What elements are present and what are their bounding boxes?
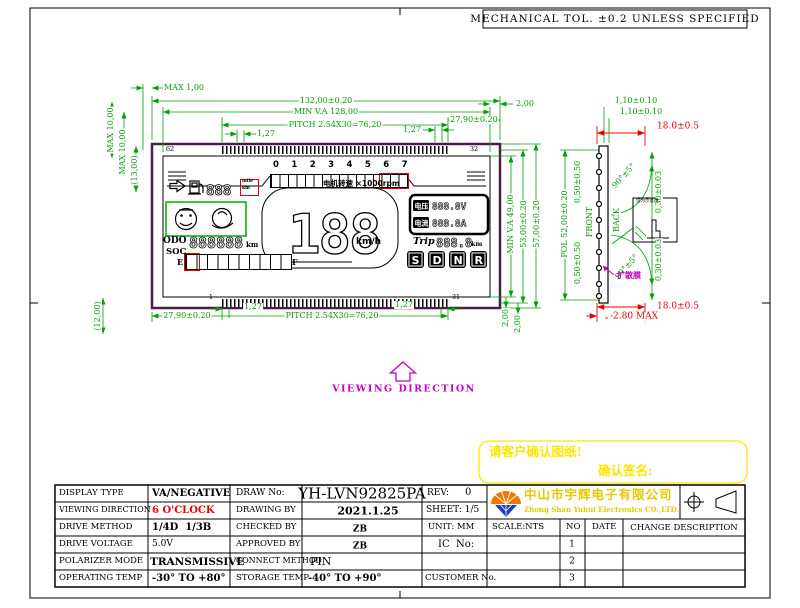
fuel-unit-b: km (242, 187, 250, 192)
dim-pol-width: POL 52,00±0.20 (561, 189, 569, 258)
connect-method-value: PIN (310, 556, 331, 567)
pin-number-62: 62 (166, 146, 174, 153)
soc-label: SOC (166, 248, 186, 257)
checked-by-value: ZB (353, 526, 367, 535)
dim-gap-top-right: 2,00 (515, 100, 535, 108)
fuel-value: 888 (206, 183, 231, 199)
customer-no-label: CUSTOMER No. (425, 574, 496, 583)
rev-label: REV: (427, 489, 449, 498)
trip-unit: km (471, 241, 482, 248)
change-row-1: 1 (569, 541, 575, 550)
gear-r: R (475, 254, 484, 267)
sheet-value: SHEET: 1/5 (426, 506, 479, 515)
fuel-unit-a: mile (242, 180, 253, 185)
dim-overall-height: 57,00±0.20 (533, 199, 541, 248)
drawing-sheet: 188 888 888888 888.8V 888.8A 888.8 电压 电流… (0, 0, 800, 608)
dim-overall-width: 132,00±0.20 (299, 97, 354, 105)
tolerance-note: MECHANICAL TOL. ±0.2 UNLESS SPECIFIED (470, 14, 759, 25)
scale-cell: SCALE:NTS (492, 523, 544, 532)
gear-n: N (454, 254, 463, 267)
rev-value: 0 (465, 488, 471, 498)
label-back: BACK (613, 207, 621, 233)
odo-unit: km (246, 241, 258, 248)
soc-empty-label: E (177, 258, 183, 266)
speed-unit: km/h (356, 238, 381, 247)
custom-segment-highlight-soc (184, 253, 200, 271)
viewing-direction-row-label: VIEWING DIRECTION (59, 506, 151, 514)
dim-127-top-left: 1,27 (256, 130, 276, 138)
dim-pin-length-top: 18.0±0.5 (657, 123, 699, 132)
company-logo (491, 490, 521, 517)
dim-offset-bottom: 0,50±0.50 (574, 241, 582, 285)
tach-digit-row: 0 1 2 3 4 5 6 7 (273, 161, 408, 170)
voltage-label: 电压 (415, 202, 429, 211)
label-front: FRONT (586, 206, 594, 238)
storage-temp-label: STORAGE TEMP (236, 574, 309, 583)
polarizer-mode-value: TRANSMISSIVE (150, 557, 244, 568)
viewing-direction-value: 6 O'CLOCK (152, 506, 215, 516)
dim-127-top-right: 1,27 (402, 126, 422, 134)
dim-bend-top: 0,30±0.03 (655, 170, 663, 214)
customer-note-line2: 确认签名: (598, 465, 653, 478)
trip-label: Trip (413, 237, 435, 247)
operating-temp-label: OPERATING TEMP (59, 574, 142, 583)
dim-thickness: -2.80 MAX (610, 313, 658, 322)
pin-number-31: 31 (452, 294, 460, 301)
dim-max-lip: MAX 1,00 (163, 84, 205, 92)
dim-gap-bottom-right-2: 2,00 (514, 314, 522, 334)
drive-method-value: 1/4D 1/3B (152, 523, 211, 533)
drawing-by-label: DRAWING BY (236, 506, 296, 515)
change-column-header: CHANGE DESCRIPTION (630, 524, 737, 533)
viewing-direction-label: VIEWING DIRECTION (332, 384, 476, 394)
no-column-header: NO (566, 523, 580, 532)
soc-gauge (185, 254, 292, 270)
dim-pin-length-bottom: 18.0±0.5 (657, 303, 699, 312)
date-column-header: DATE (592, 523, 616, 532)
company-name-en: Zhong Shan Yuhui Electronics CO.,LTD. (524, 506, 679, 513)
dim-pol-height: 53,00±0.20 (520, 199, 528, 248)
dim-layer-b: 1,10±0.10 (619, 108, 663, 116)
approved-by-label: APPROVED BY (236, 540, 300, 549)
dim-min-va-height: MIN V.A 49,00 (507, 193, 515, 254)
storage-temp-value: -40° TO +90° (308, 574, 381, 584)
voltage-value: 888.8V (432, 202, 467, 213)
odo-value: 888888 (189, 234, 243, 252)
trip-value: 888.8 (436, 236, 472, 250)
diffuser-label: 扩散膜 (617, 271, 641, 279)
drawing-by-value: 2021.1.25 (337, 506, 398, 517)
display-type-value: VA/NEGATIVE (152, 489, 230, 499)
checked-by-label: CHECKED BY (236, 523, 296, 532)
current-value: 888.8A (432, 219, 467, 230)
projection-symbol-icon (684, 491, 736, 513)
draw-no-value: YH-LVN92825PA (298, 487, 425, 502)
speed-value: 188 (288, 203, 380, 266)
dim-min-va-width: MIN V.A 128,00 (293, 108, 359, 116)
dim-edge-bottom: 27,90±0.20 (162, 312, 211, 320)
display-type-label: DISPLAY TYPE (59, 489, 124, 498)
viewing-direction-arrow-icon (391, 362, 416, 381)
dim-layer-a: 1,10±0.10 (614, 97, 658, 105)
dim-gap-bottom-right-1: 2,00 (502, 308, 510, 328)
customer-note-line1: 请客户确认图纸! (489, 446, 582, 459)
polarizer-mode-label: POLARIZER MODE (59, 557, 143, 566)
gear-s: S (412, 254, 420, 267)
approved-by-value: ZB (353, 543, 367, 552)
connect-method-label: CONNECT METHOD (236, 557, 322, 565)
change-row-2: 2 (569, 558, 575, 567)
dim-offset-top: 0,50±0.50 (574, 160, 582, 204)
drive-voltage-label: DRIVE VOLTAGE (59, 540, 133, 549)
dim-pitch-top: PITCH 2.54X30=76,20 (288, 121, 383, 129)
dim-127-bottom-left: 1,27 (243, 303, 263, 311)
detail-note: 仅为示意用 (636, 200, 659, 205)
company-name-cn: 中山市宇辉电子有限公司 (524, 489, 673, 502)
current-label: 电流 (415, 219, 429, 228)
dim-max10-a: MAX 10,00 (107, 106, 115, 153)
pin-number-1: 1 (209, 294, 213, 301)
tachometer-label: 电机转速 ×1000rpm (323, 180, 400, 188)
dim-127-bottom-right: 1,27 (394, 301, 414, 309)
dim-max10-b: MAX 10,00 (119, 128, 127, 175)
connector-pins-top (222, 146, 450, 154)
ic-no-label: IC No: (438, 540, 474, 550)
dim-bend-bottom: 0,30±0.03 (655, 238, 663, 282)
unit-cell: UNIT: MM (428, 523, 474, 532)
soc-full-label: F (292, 258, 298, 266)
dim-edge-top: 27,90±0.20 (449, 116, 498, 124)
dim-ref-12: (12,00) (94, 300, 102, 331)
draw-no-label: DRAW No: (236, 489, 285, 498)
dim-ref-13: (13,00) (131, 154, 139, 185)
pin-number-32: 32 (470, 146, 478, 153)
drive-voltage-value: 5.0V (152, 540, 173, 549)
dim-pitch-bottom: PITCH 2.54X30=76,20 (285, 312, 380, 320)
drive-method-label: DRIVE METHOD (59, 523, 132, 532)
gear-d: D (433, 254, 442, 267)
odo-label: ODO (163, 237, 186, 246)
change-row-3: 3 (569, 575, 575, 584)
operating-temp-value: -30° TO +80° (152, 574, 225, 584)
